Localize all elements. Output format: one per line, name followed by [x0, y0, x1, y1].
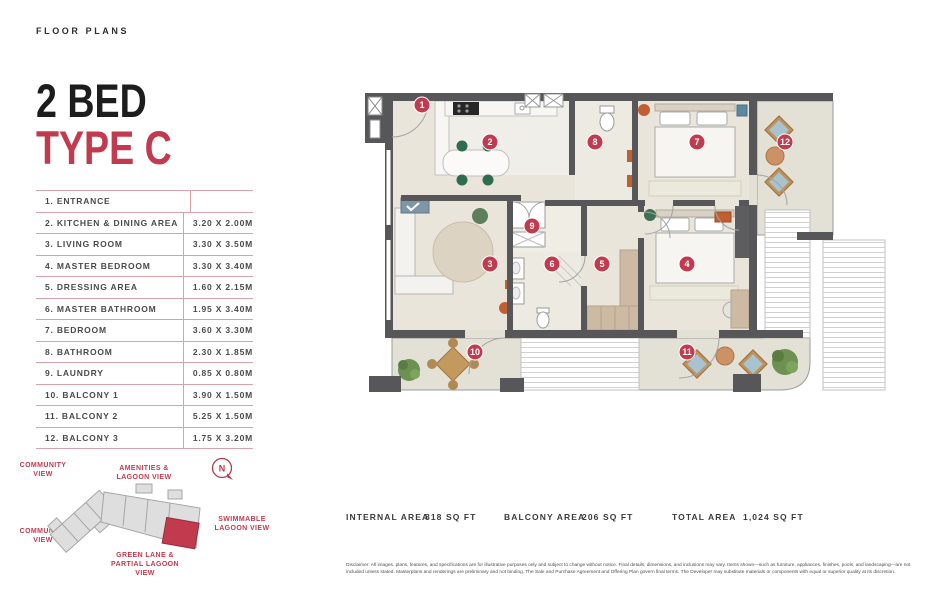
room-marker-number: 4 [684, 259, 689, 269]
page-eyebrow: FLOOR PLANS [36, 26, 129, 36]
room-marker-number: 7 [694, 137, 699, 147]
deck-hatch-right-pocket [765, 210, 810, 338]
room-name: 5. DRESSING AREA [36, 282, 183, 292]
room-marker-number: 5 [599, 259, 604, 269]
room-marker-number: 2 [487, 137, 492, 147]
page-title-line2: TYPE C [36, 124, 172, 171]
room-dimension [190, 191, 253, 212]
internal-area-label: INTERNAL AREA [346, 512, 425, 522]
room-marker-number: 6 [549, 259, 554, 269]
room-marker-number: 3 [487, 259, 492, 269]
table-row: 9. LAUNDRY0.85 X 0.80M [36, 363, 253, 385]
table-row: 10. BALCONY 13.90 X 1.50M [36, 385, 253, 407]
total-area-group: TOTAL AREA 1,024 SQ FT [672, 512, 804, 522]
deck-hatch-center [521, 338, 639, 390]
table-row: 6. MASTER BATHROOM1.95 X 3.40M [36, 299, 253, 321]
table-row: 1. ENTRANCE [36, 191, 253, 213]
total-area-label: TOTAL AREA [672, 512, 743, 522]
room-dimension: 3.30 X 3.50M [183, 234, 253, 255]
room-name: 10. BALCONY 1 [36, 390, 183, 400]
floor-plan-drawing: 123456789101112 [345, 80, 930, 400]
room-name: 4. MASTER BEDROOM [36, 261, 183, 271]
room-dimension: 1.60 X 2.15M [183, 277, 253, 298]
table-row: 4. MASTER BEDROOM3.30 X 3.40M [36, 256, 253, 278]
table-row: 5. DRESSING AREA1.60 X 2.15M [36, 277, 253, 299]
room-name: 7. BEDROOM [36, 325, 183, 335]
keyplan-highlighted-unit [162, 517, 199, 548]
room-marker-number: 12 [780, 137, 790, 147]
room-name: 3. LIVING ROOM [36, 239, 183, 249]
table-row: 3. LIVING ROOM3.30 X 3.50M [36, 234, 253, 256]
room-marker-number: 8 [592, 137, 597, 147]
rug [433, 222, 493, 282]
room-marker-number: 1 [419, 100, 424, 110]
table-row: 7. BEDROOM3.60 X 3.30M [36, 320, 253, 342]
room-dimension: 5.25 X 1.50M [183, 406, 253, 427]
table-row: 12. BALCONY 31.75 X 3.20M [36, 428, 253, 450]
room-marker-number: 10 [470, 347, 480, 357]
room-dimension: 3.30 X 3.40M [183, 256, 253, 277]
table-row: 8. BATHROOM2.30 X 1.85M [36, 342, 253, 364]
room-dimension: 3.90 X 1.50M [183, 385, 253, 406]
balcony-area-label: BALCONY AREA [504, 512, 582, 522]
keyplan-building-footprint [40, 472, 220, 577]
room-name: 8. BATHROOM [36, 347, 183, 357]
room-name: 9. LAUNDRY [36, 368, 183, 378]
room-marker-number: 11 [682, 347, 692, 357]
room-marker-number: 9 [529, 221, 534, 231]
balcony-area-value: 206 SQ FT [582, 512, 633, 522]
room-dimension: 1.95 X 3.40M [183, 299, 253, 320]
stove [453, 102, 479, 115]
plant [472, 208, 488, 224]
deck-hatch-right-column [823, 240, 885, 390]
wardrobe [735, 204, 749, 258]
kitchen-island [443, 150, 509, 176]
room-name: 6. MASTER BATHROOM [36, 304, 183, 314]
internal-area-group: INTERNAL AREA 818 SQ FT [346, 512, 476, 522]
room-dimension: 2.30 X 1.85M [183, 342, 253, 363]
internal-area-value: 818 SQ FT [425, 512, 476, 522]
disclaimer-text: Disclaimer: All images, plans, features,… [346, 562, 921, 577]
desk [731, 290, 749, 328]
page-title-line1: 2 BED [36, 77, 147, 124]
room-dimension: 1.75 X 3.20M [183, 428, 253, 449]
room-dimension: 0.85 X 0.80M [183, 363, 253, 384]
room-name: 2. KITCHEN & DINING AREA [36, 218, 183, 228]
room-dimension: 3.20 X 2.00M [183, 213, 253, 234]
bed [656, 233, 734, 283]
table-row: 11. BALCONY 25.25 X 1.50M [36, 406, 253, 428]
room-name: 11. BALCONY 2 [36, 411, 183, 421]
room-name: 12. BALCONY 3 [36, 433, 183, 443]
room-dimension: 3.60 X 3.30M [183, 320, 253, 341]
total-area-value: 1,024 SQ FT [743, 512, 804, 522]
room-dimension-table: 1. ENTRANCE2. KITCHEN & DINING AREA3.20 … [36, 190, 253, 449]
floor-plan-page: FLOOR PLANS 2 BED TYPE C 1. ENTRANCE2. K… [0, 0, 933, 600]
sofa [395, 208, 415, 280]
table-row: 2. KITCHEN & DINING AREA3.20 X 2.00M [36, 213, 253, 235]
toilet [537, 312, 549, 328]
room-name: 1. ENTRANCE [36, 196, 190, 206]
balcony-area-group: BALCONY AREA 206 SQ FT [504, 512, 633, 522]
toilet [600, 113, 614, 131]
